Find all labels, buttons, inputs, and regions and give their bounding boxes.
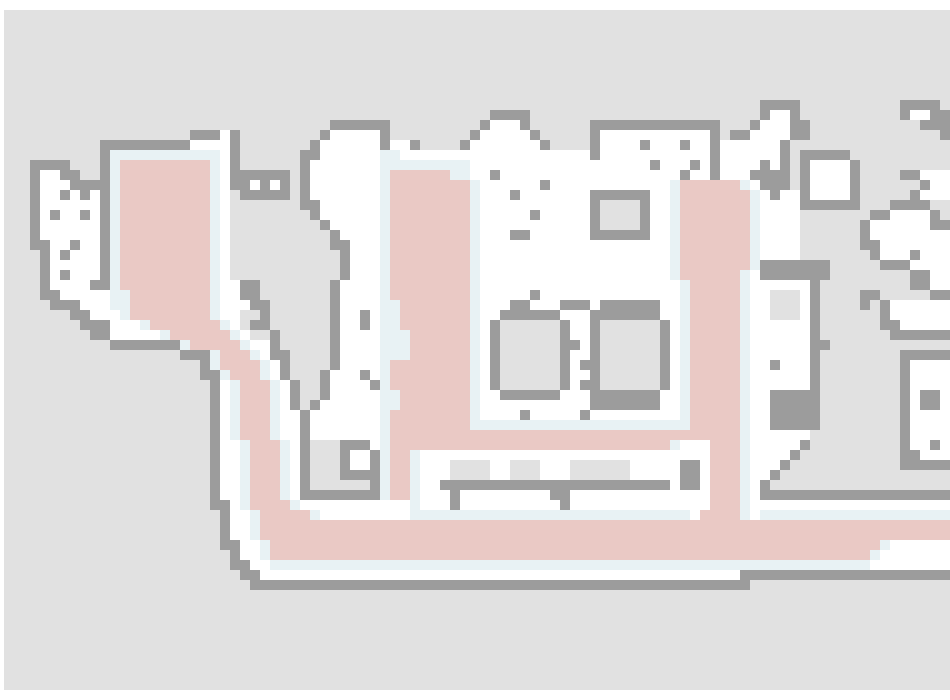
occupancy-grid-map[interactable] [0,0,950,700]
occupancy-map-viewport [0,0,950,700]
